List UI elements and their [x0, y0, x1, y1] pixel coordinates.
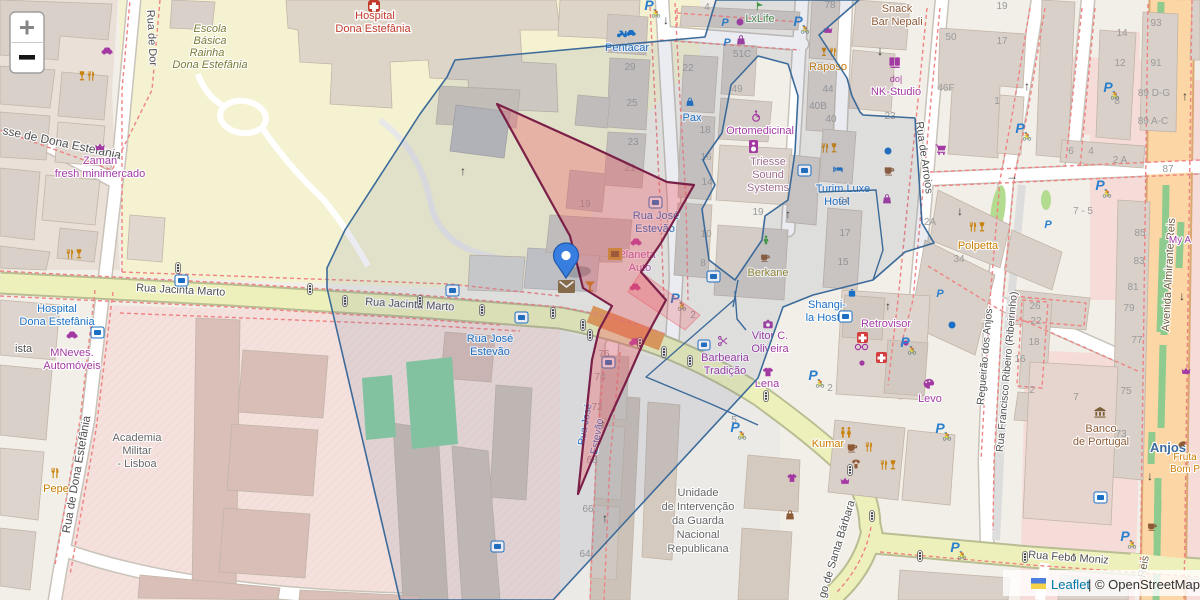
svg-text:14: 14: [1116, 28, 1128, 39]
svg-text:Academia: Academia: [113, 432, 163, 444]
svg-text:34: 34: [953, 254, 965, 265]
svg-text:Banco: Banco: [1085, 423, 1116, 435]
svg-text:91: 91: [1150, 58, 1162, 69]
svg-text:Militar: Militar: [122, 445, 152, 457]
svg-text:🚴: 🚴: [651, 8, 661, 18]
svg-text:Bar Nepali: Bar Nepali: [871, 16, 922, 28]
svg-text:Levo: Levo: [918, 393, 942, 405]
svg-text:| © OpenStreetMap: | © OpenStreetMap: [1088, 577, 1200, 592]
svg-text:🚴: 🚴: [907, 345, 917, 355]
svg-text:Ortomedicinal: Ortomedicinal: [726, 125, 794, 137]
svg-text:7: 7: [1073, 392, 1079, 403]
svg-text:16: 16: [1014, 354, 1026, 365]
svg-text:Hospital: Hospital: [37, 303, 77, 315]
svg-text:Snack: Snack: [882, 3, 913, 15]
svg-text:🚴: 🚴: [737, 430, 747, 440]
svg-text:🚴: 🚴: [1110, 90, 1120, 100]
svg-text:🚴: 🚴: [1102, 188, 1112, 198]
svg-text:Shangi-: Shangi-: [808, 299, 846, 311]
svg-text:→: →: [1006, 169, 1018, 183]
svg-text:87: 87: [1162, 164, 1174, 175]
svg-text:🚴: 🚴: [815, 378, 825, 388]
svg-text:🚴: 🚴: [1127, 539, 1137, 549]
svg-text:26: 26: [1029, 301, 1041, 312]
svg-text:7 - 5: 7 - 5: [1073, 206, 1093, 217]
svg-text:NK-Studio: NK-Studio: [871, 86, 921, 98]
svg-text:Kumar: Kumar: [812, 438, 845, 450]
svg-text:P: P: [1044, 219, 1052, 231]
svg-text:1: 1: [994, 96, 1000, 107]
svg-text:79: 79: [1123, 303, 1135, 314]
svg-text:de Intervenção: de Intervenção: [662, 501, 735, 513]
svg-text:Automóveis: Automóveis: [43, 360, 101, 372]
svg-text:Systems: Systems: [747, 182, 790, 194]
svg-text:17: 17: [996, 36, 1008, 47]
svg-text:19: 19: [752, 207, 764, 218]
svg-text:- Lisboa: - Lisboa: [117, 458, 157, 470]
svg-text:Lena: Lena: [755, 378, 780, 390]
svg-text:da Guarda: da Guarda: [672, 515, 725, 527]
svg-text:83: 83: [1133, 256, 1145, 267]
svg-text:Polpetta: Polpetta: [958, 240, 999, 252]
svg-text:50: 50: [945, 32, 957, 43]
svg-text:2: 2: [827, 383, 833, 394]
svg-text:Nacional: Nacional: [677, 529, 720, 541]
svg-text:↓: ↓: [1147, 469, 1153, 483]
svg-text:↓: ↓: [877, 43, 884, 58]
svg-text:19: 19: [996, 1, 1008, 12]
svg-text:↑: ↑: [885, 299, 891, 313]
svg-text:77: 77: [1131, 335, 1143, 346]
svg-text:↑: ↑: [1182, 89, 1188, 103]
svg-text:Bom P: Bom P: [1170, 464, 1200, 475]
svg-text:MNeves.: MNeves.: [50, 347, 93, 359]
svg-text:75: 75: [1120, 386, 1132, 397]
svg-text:Zaman: Zaman: [83, 155, 117, 167]
svg-text:Básica: Básica: [193, 35, 226, 47]
svg-text:Dona Estefânia: Dona Estefânia: [335, 23, 411, 35]
svg-text:49: 49: [731, 84, 743, 95]
svg-text:↓: ↓: [663, 13, 669, 27]
svg-text:81: 81: [1127, 282, 1139, 293]
svg-text:22: 22: [1030, 316, 1042, 327]
svg-text:46F: 46F: [937, 83, 954, 94]
svg-text:Leaflet: Leaflet: [1051, 577, 1090, 592]
svg-text:My A: My A: [1169, 235, 1192, 246]
svg-text:93: 93: [1150, 18, 1162, 29]
svg-text:Dona Estefânia: Dona Estefânia: [172, 59, 247, 71]
svg-text:Dona Estefânia: Dona Estefânia: [19, 316, 95, 328]
svg-text:do|: do|: [890, 74, 902, 84]
svg-text:2: 2: [1029, 385, 1035, 396]
svg-text:🚴: 🚴: [942, 431, 952, 441]
svg-text:ista: ista: [15, 343, 33, 355]
svg-text:89 D-G: 89 D-G: [1138, 88, 1170, 99]
svg-text:↓: ↓: [957, 204, 963, 218]
svg-text:↑: ↑: [1024, 79, 1030, 93]
svg-text:89 A-C: 89 A-C: [1138, 116, 1169, 127]
svg-text:6: 6: [1068, 146, 1074, 157]
svg-text:P: P: [936, 288, 944, 300]
svg-text:85: 85: [1134, 228, 1146, 239]
svg-text:↓: ↓: [1179, 289, 1185, 303]
svg-text:4: 4: [704, 2, 710, 13]
svg-text:Pepe: Pepe: [43, 483, 69, 495]
svg-text:Unidade: Unidade: [678, 487, 719, 499]
svg-text:Retrovisor: Retrovisor: [861, 318, 911, 330]
svg-text:Triesse: Triesse: [750, 156, 786, 168]
svg-text:12: 12: [1114, 58, 1126, 69]
svg-text:fresh minimercado: fresh minimercado: [55, 168, 145, 180]
svg-text:2A: 2A: [924, 217, 937, 228]
svg-text:🚴: 🚴: [1022, 131, 1032, 141]
svg-text:🚴: 🚴: [957, 550, 967, 560]
svg-text:Escola: Escola: [193, 23, 226, 35]
svg-text:↑: ↑: [1071, 549, 1077, 563]
svg-text:Rainha: Rainha: [190, 47, 225, 59]
svg-text:Republicana: Republicana: [667, 543, 729, 555]
svg-text:18: 18: [1028, 337, 1040, 348]
svg-text:Sound: Sound: [752, 169, 784, 181]
svg-text:4: 4: [1088, 146, 1094, 157]
svg-text:73: 73: [1115, 429, 1127, 440]
svg-text:2 A: 2 A: [1113, 155, 1128, 166]
